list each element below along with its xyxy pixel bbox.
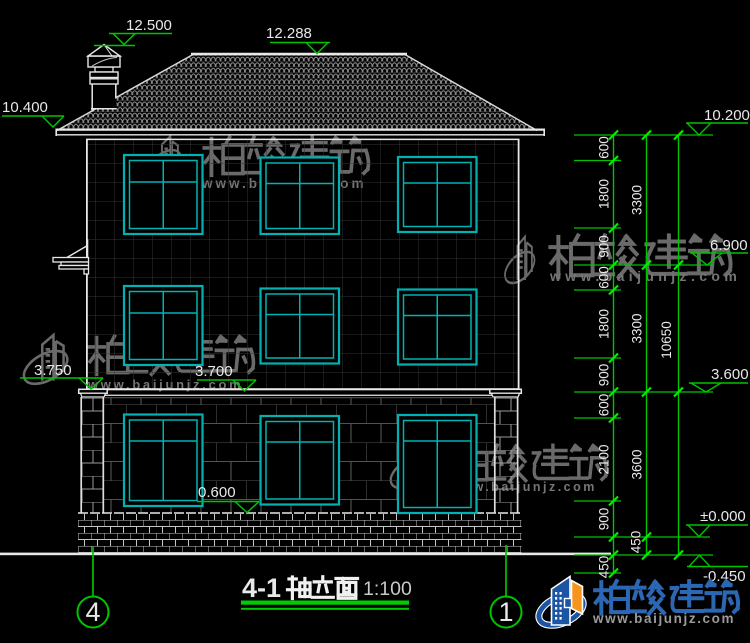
svg-text:450: 450 <box>629 531 644 554</box>
svg-text:10.400: 10.400 <box>2 99 48 116</box>
svg-text:450: 450 <box>597 556 612 579</box>
svg-text:2100: 2100 <box>597 444 612 474</box>
svg-text:±0.000: ±0.000 <box>700 508 746 525</box>
svg-text:3.700: 3.700 <box>195 363 233 380</box>
svg-text:3300: 3300 <box>630 185 645 215</box>
svg-text:600: 600 <box>597 266 612 289</box>
svg-text:900: 900 <box>597 508 612 531</box>
svg-text:4-1: 4-1 <box>242 573 281 603</box>
svg-text:600: 600 <box>597 136 612 159</box>
svg-text:12.288: 12.288 <box>266 25 312 42</box>
svg-text:3.600: 3.600 <box>711 366 749 383</box>
svg-text:1800: 1800 <box>597 309 612 339</box>
svg-text:3600: 3600 <box>630 449 645 479</box>
svg-text:12.500: 12.500 <box>126 17 172 34</box>
svg-text:www.baijunjz.com: www.baijunjz.com <box>549 268 741 284</box>
svg-text:10.200: 10.200 <box>704 107 750 124</box>
svg-text:3.750: 3.750 <box>34 362 72 379</box>
svg-text:3300: 3300 <box>630 313 645 343</box>
svg-text:10650: 10650 <box>659 321 674 359</box>
svg-text:4: 4 <box>85 597 100 627</box>
svg-text:900: 900 <box>597 364 612 387</box>
svg-text:1: 1 <box>498 597 513 627</box>
svg-text:1800: 1800 <box>597 179 612 209</box>
svg-text:www.baijunjz.com: www.baijunjz.com <box>592 611 735 626</box>
svg-text:900: 900 <box>597 235 612 258</box>
svg-text:0.600: 0.600 <box>198 484 236 501</box>
svg-text:6.900: 6.900 <box>710 237 748 254</box>
svg-text:600: 600 <box>597 394 612 417</box>
svg-text:1:100: 1:100 <box>363 578 412 600</box>
